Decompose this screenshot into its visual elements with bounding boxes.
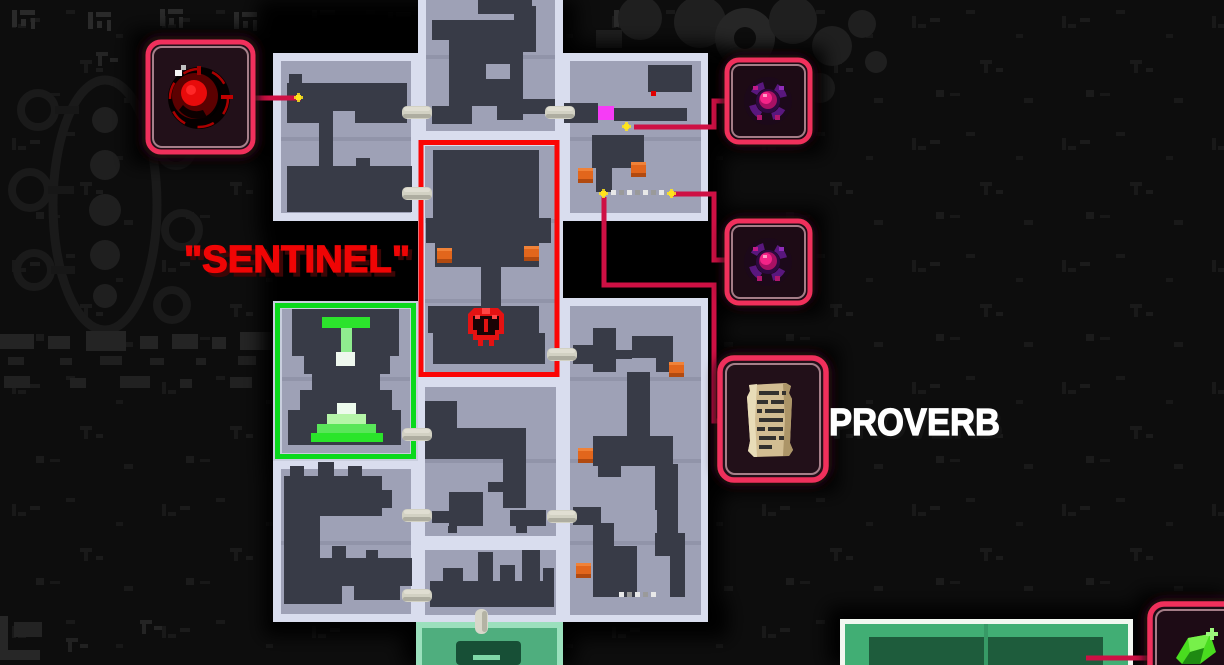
svg-text:PROVERB: PROVERB xyxy=(829,402,1000,444)
svg-text:"SENTINEL": "SENTINEL" xyxy=(184,239,410,281)
